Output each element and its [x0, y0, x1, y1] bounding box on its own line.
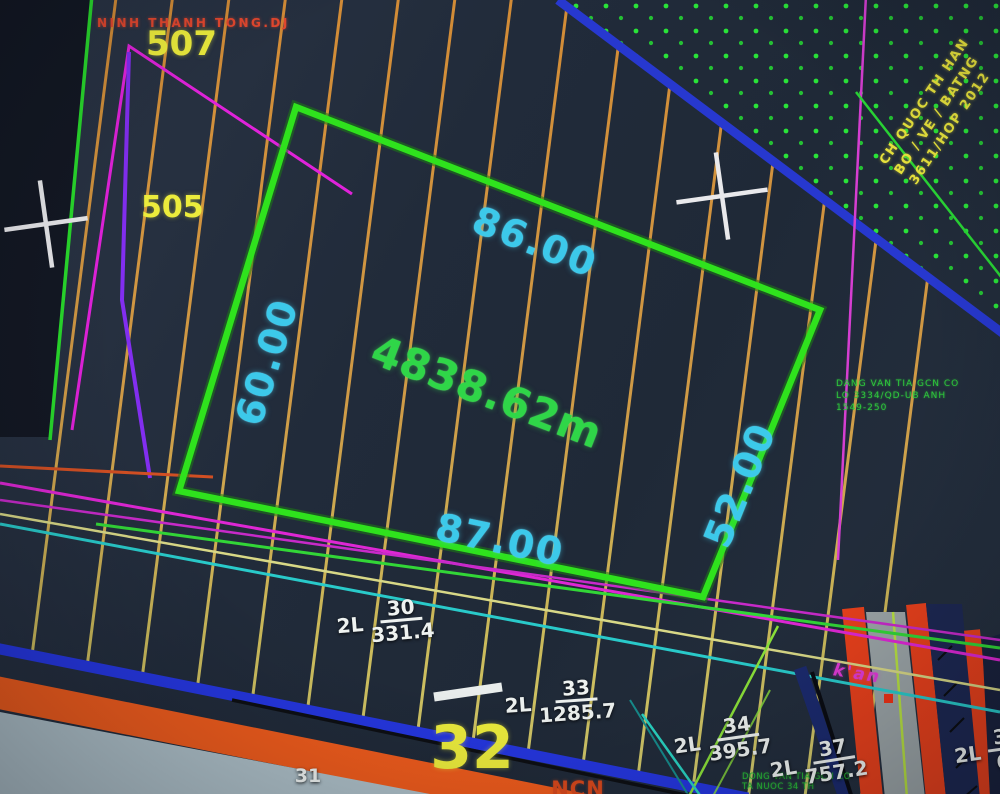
- green-note-line: DANG VAN TIA GCN CO: [836, 378, 959, 390]
- green-note-line: 1549-250: [836, 402, 959, 414]
- hatch-line: [578, 0, 682, 794]
- bottom-orange-label: NCN: [551, 777, 605, 794]
- parcel-505-label: 505: [141, 190, 204, 225]
- measurement-fraction-edge: 2L 36: [951, 725, 1000, 779]
- fraction-prefix: 2L: [672, 731, 702, 758]
- cad-map-canvas[interactable]: NINH THANH TONG.DJ 507 505 86.00 60.00 5…: [0, 0, 1000, 794]
- violet-boundary: [122, 52, 150, 478]
- fraction-denominator: 1285.7: [538, 699, 617, 726]
- parcel-31-label: 31: [295, 765, 321, 787]
- crosshair-marker-right: [670, 146, 773, 246]
- fraction-prefix: 2L: [336, 612, 365, 638]
- fraction-denominator: 6: [995, 750, 1000, 774]
- hatch-line: [296, 0, 400, 794]
- white-scale-bar: [434, 687, 502, 697]
- measurement-fraction-33: 2L 331285.7: [503, 675, 617, 729]
- measurement-fraction-30: 2L 30331.4: [335, 595, 436, 649]
- fraction-prefix: 2L: [953, 741, 983, 768]
- parcel-32-label: 32: [430, 713, 514, 783]
- parcel-507-label: 507: [146, 24, 217, 64]
- green-note-line: LO 3334/QD-UB ANH: [836, 390, 959, 402]
- green-note-block: DANG VAN TIA GCN CO LO 3334/QD-UB ANH 15…: [836, 378, 959, 414]
- fraction-prefix: 2L: [768, 755, 798, 783]
- fraction-denominator: 331.4: [370, 619, 435, 646]
- fraction-numerator: 3: [985, 725, 1000, 753]
